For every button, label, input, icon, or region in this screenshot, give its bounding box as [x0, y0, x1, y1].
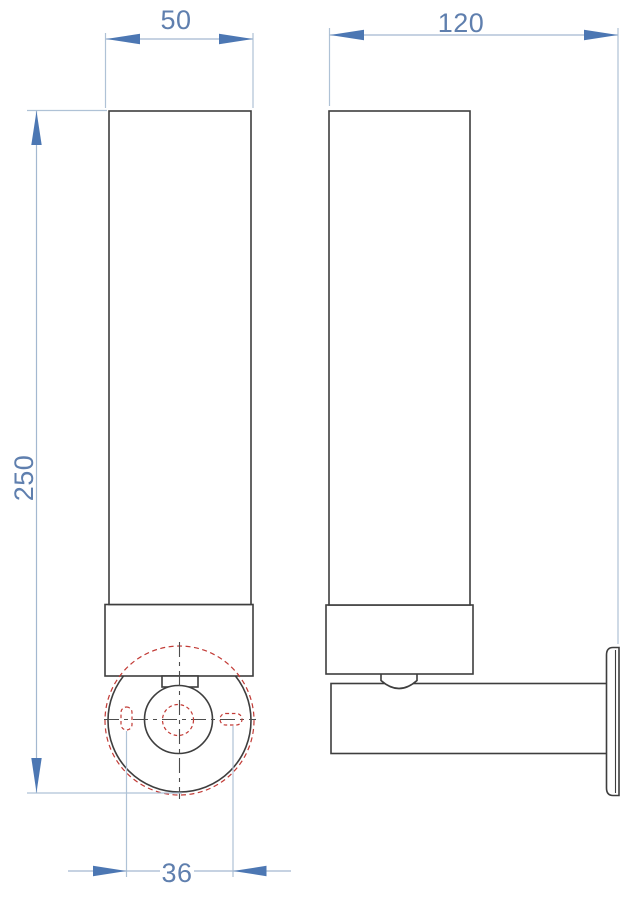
- front-tube: [109, 111, 251, 605]
- width-arrow-right-icon: [219, 34, 253, 44]
- hole-spacing-arrow-left-icon: [93, 866, 127, 876]
- hole-spacing-arrow-right-icon: [233, 866, 267, 876]
- technical-drawing-canvas: 50 120 250 36: [0, 0, 628, 897]
- side-tube: [329, 111, 470, 605]
- side-body-block: [326, 605, 473, 674]
- height-arrow-top-icon: [31, 111, 41, 145]
- height-dim-label: 250: [9, 455, 39, 502]
- side-view: [326, 111, 619, 796]
- width-dim-label: 50: [160, 5, 191, 35]
- wall-lamp-drawing: 50 120 250 36: [0, 0, 628, 897]
- hole-spacing-dim-label: 36: [161, 858, 192, 888]
- side-arm: [331, 684, 607, 754]
- side-wall-plate: [607, 648, 620, 796]
- height-arrow-bottom-icon: [31, 758, 41, 793]
- dimension-width-50: 50: [106, 5, 254, 108]
- front-view: [104, 111, 256, 799]
- depth-arrow-right-icon: [584, 30, 618, 40]
- depth-dim-label: 120: [438, 8, 485, 38]
- width-arrow-left-icon: [106, 34, 140, 44]
- depth-arrow-left-icon: [330, 30, 364, 40]
